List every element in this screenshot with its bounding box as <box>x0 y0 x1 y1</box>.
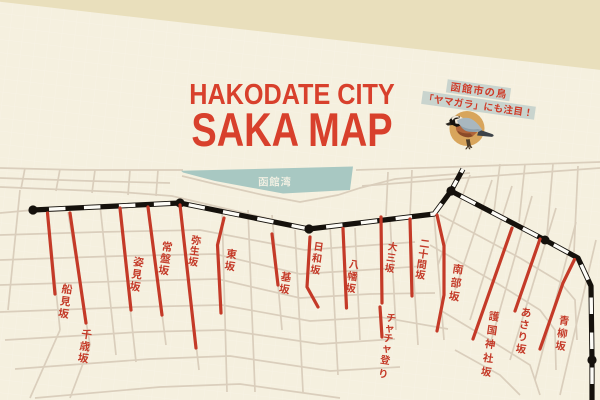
svg-text:SAKA MAP: SAKA MAP <box>191 104 392 157</box>
